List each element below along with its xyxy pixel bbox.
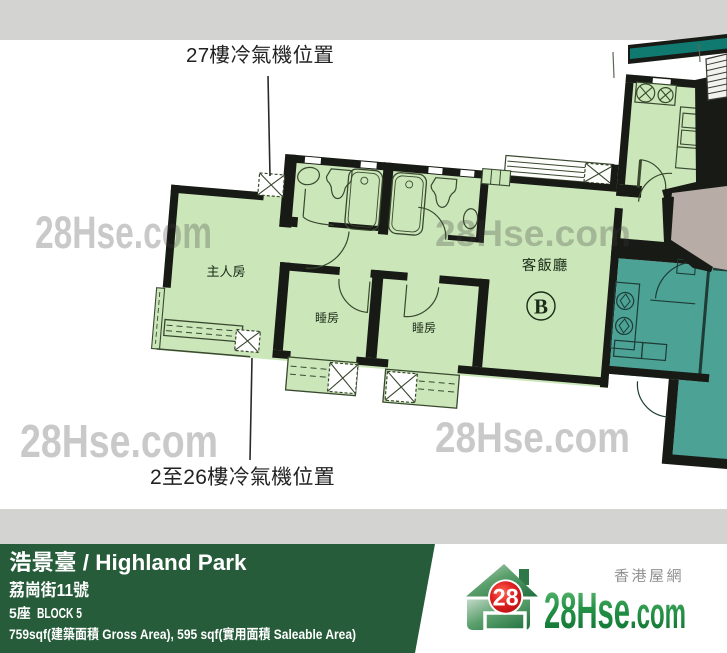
svg-text:浩景臺 / Highland Park: 浩景臺 / Highland Park <box>9 550 247 575</box>
svg-text:27樓冷氣機位置: 27樓冷氣機位置 <box>186 44 334 67</box>
svg-text:客飯廳: 客飯廳 <box>522 257 569 274</box>
svg-text:5座: 5座 <box>9 605 31 621</box>
svg-text:B: B <box>534 295 548 319</box>
svg-text:759sqf(建築面積 Gross Area), 595 s: 759sqf(建築面積 Gross Area), 595 sqf(實用面積 Sa… <box>9 626 356 642</box>
svg-text:BLOCK 5: BLOCK 5 <box>37 605 82 622</box>
svg-text:荔崗街11號: 荔崗街11號 <box>9 580 89 600</box>
svg-text:28Hse.com: 28Hse.com <box>435 414 630 462</box>
svg-text:香港屋網: 香港屋網 <box>614 568 684 585</box>
svg-text:.com: .com <box>630 589 686 638</box>
svg-text:28: 28 <box>493 585 519 612</box>
svg-text:睡房: 睡房 <box>315 311 339 325</box>
svg-text:2至26樓冷氣機位置: 2至26樓冷氣機位置 <box>150 466 335 489</box>
svg-text:28Hse.com: 28Hse.com <box>20 415 218 467</box>
svg-text:睡房: 睡房 <box>412 321 436 335</box>
svg-text:28Hse.com: 28Hse.com <box>35 207 212 258</box>
svg-text:28Hse.com: 28Hse.com <box>435 213 631 254</box>
svg-text:28Hse: 28Hse <box>544 582 630 639</box>
svg-text:主人房: 主人房 <box>206 264 245 279</box>
